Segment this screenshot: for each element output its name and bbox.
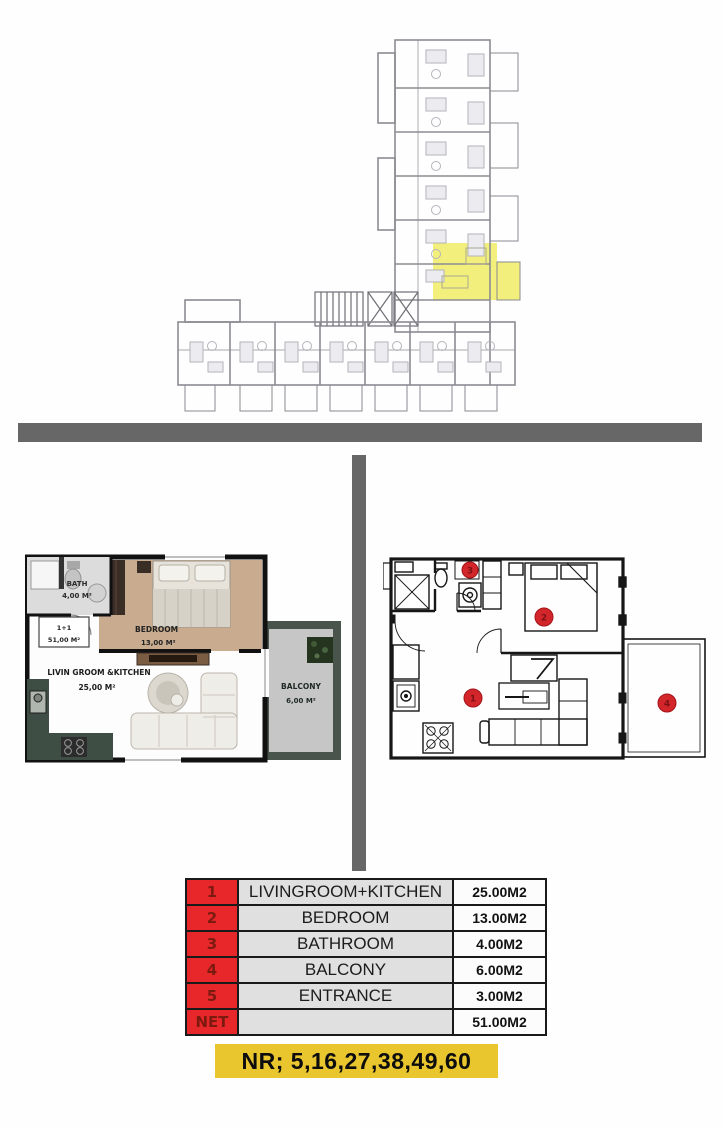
svg-text:3: 3	[467, 567, 473, 577]
room-markers: 1 2 3 4	[462, 562, 676, 712]
svg-text:4: 4	[664, 700, 670, 710]
bedroom-area: 13,00 M²	[141, 639, 176, 647]
room-name: BEDROOM	[238, 905, 453, 931]
bathroom-fixtures	[391, 559, 501, 611]
room-size: 51.00M2	[453, 1009, 546, 1035]
apartment-flyer-page: BALCONY 6,00 M² BEDROOM	[0, 0, 722, 1128]
room-name: LIVINGROOM+KITCHEN	[238, 879, 453, 905]
area-table: 1LIVINGROOM+KITCHEN25.00M22BEDROOM13.00M…	[185, 878, 547, 1036]
washing-machine	[459, 583, 481, 607]
area-table-row: 4BALCONY6.00M2	[186, 957, 546, 983]
area-table-row: 1LIVINGROOM+KITCHEN25.00M2	[186, 879, 546, 905]
marker-livingroom: 1	[464, 689, 482, 707]
kitchen-drawing	[393, 645, 453, 753]
row-number: 5	[186, 983, 238, 1009]
area-table-row: 2BEDROOM13.00M2	[186, 905, 546, 931]
unit-area: 51,00 M²	[48, 636, 80, 644]
row-number: 2	[186, 905, 238, 931]
svg-text:1: 1	[470, 695, 476, 705]
bedroom: BEDROOM 13,00 M²	[99, 560, 262, 651]
building-site-plan	[170, 28, 530, 423]
room-name: ENTRANCE	[238, 983, 453, 1009]
balcony: BALCONY 6,00 M²	[261, 621, 341, 760]
staircase	[315, 292, 363, 326]
balcony-door	[261, 649, 269, 697]
horizontal-wing	[178, 300, 515, 411]
shower	[31, 561, 59, 589]
bath-area: 4,00 M²	[62, 592, 92, 600]
room-size: 25.00M2	[453, 879, 546, 905]
nightstand	[509, 563, 523, 575]
marker-bathroom: 3	[462, 562, 478, 578]
room-name: BATHROOM	[238, 931, 453, 957]
room-size: 4.00M2	[453, 931, 546, 957]
unit-type: 1+1	[57, 624, 72, 632]
toilet	[67, 561, 80, 569]
area-table-body: 1LIVINGROOM+KITCHEN25.00M22BEDROOM13.00M…	[186, 879, 546, 1035]
tv-unit	[511, 655, 557, 681]
bath-label: BATH	[67, 580, 88, 588]
living-label: LIVIN GROOM &KITCHEN	[47, 668, 150, 677]
row-number: 3	[186, 931, 238, 957]
horizontal-divider	[18, 423, 702, 442]
stove	[61, 737, 87, 757]
sofa-drawing	[480, 679, 587, 745]
coffee-table	[499, 683, 549, 709]
marker-bedroom: 2	[535, 608, 553, 626]
marker-balcony: 4	[658, 694, 676, 712]
room-name: BALCONY	[238, 957, 453, 983]
area-table-row: NET51.00M2	[186, 1009, 546, 1035]
area-table-row: 3BATHROOM4.00M2	[186, 931, 546, 957]
bedroom-drawing	[477, 563, 626, 653]
balcony-area: 6,00 M²	[286, 697, 316, 705]
unit-label-box: 1+1 51,00 M²	[39, 617, 89, 647]
plant-icon	[307, 637, 333, 663]
elevator-core	[368, 292, 418, 326]
living-area: 25,00 M²	[78, 683, 115, 692]
row-number: NET	[186, 1009, 238, 1035]
technical-floor-plan: 1 2 3 4	[383, 553, 713, 768]
bedroom-label: BEDROOM	[135, 625, 178, 634]
room-size: 3.00M2	[453, 983, 546, 1009]
toilet	[435, 563, 447, 569]
round-table	[148, 673, 188, 713]
unit-numbers-banner: NR; 5,16,27,38,49,60	[215, 1044, 498, 1078]
room-name	[238, 1009, 453, 1035]
room-size: 13.00M2	[453, 905, 546, 931]
svg-text:2: 2	[541, 614, 547, 624]
stove	[423, 723, 453, 753]
area-table-row: 5ENTRANCE3.00M2	[186, 983, 546, 1009]
tv-console	[137, 653, 209, 665]
row-number: 4	[186, 957, 238, 983]
unit-numbers-text: NR; 5,16,27,38,49,60	[242, 1048, 472, 1075]
apartment-outline	[391, 559, 623, 758]
vertical-divider	[352, 455, 366, 871]
balcony-label: BALCONY	[281, 682, 321, 691]
row-number: 1	[186, 879, 238, 905]
room-size: 6.00M2	[453, 957, 546, 983]
door-arc	[477, 629, 501, 653]
rendered-floor-plan: BALCONY 6,00 M² BEDROOM	[25, 553, 345, 768]
cabinet	[483, 561, 501, 609]
